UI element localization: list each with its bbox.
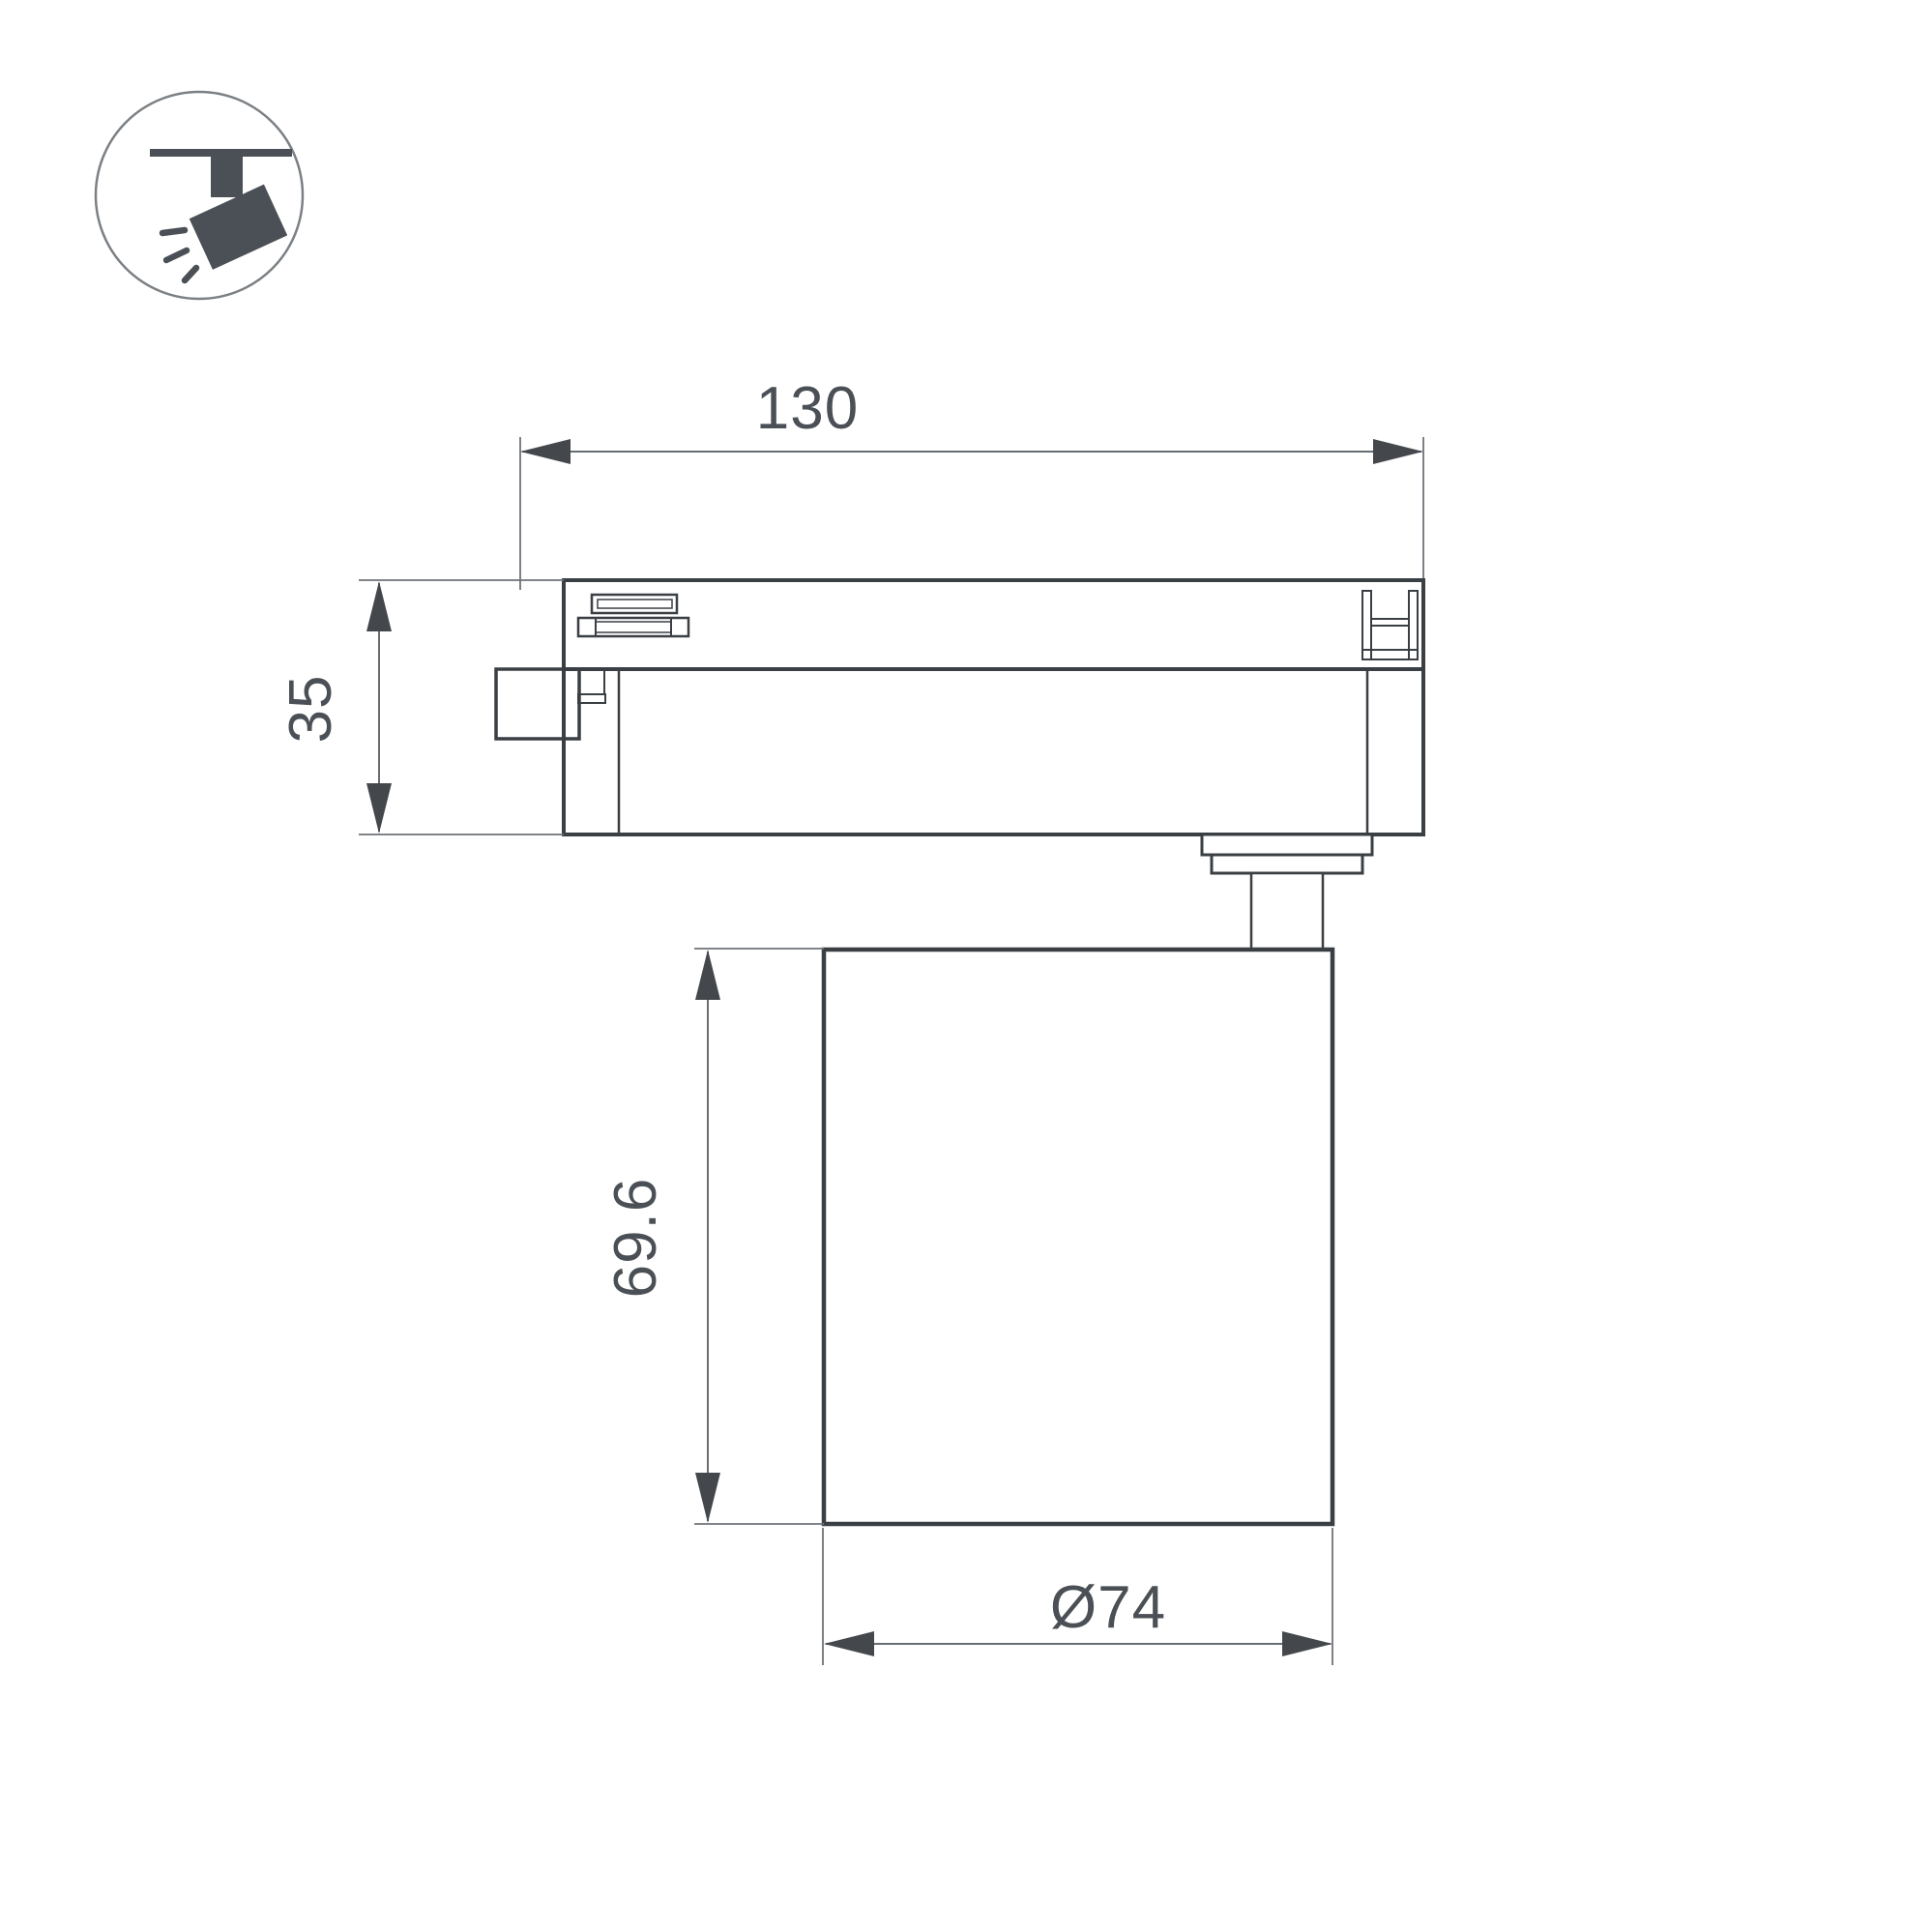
arrow-down-icon xyxy=(366,783,392,834)
arrow-up-icon xyxy=(366,581,392,631)
dim-adapter-height-label: 35 xyxy=(278,675,344,744)
hinge-plate-lower xyxy=(1212,855,1362,873)
dim-adapter-height: 35 xyxy=(278,580,564,834)
drawing-canvas: 130 35 69.6 Ø74 xyxy=(0,0,1932,1932)
technical-drawing-svg: 130 35 69.6 Ø74 xyxy=(0,0,1932,1932)
spotlight-head-icon xyxy=(190,185,287,270)
dim-lamp-height: 69.6 xyxy=(602,949,824,1524)
track-adapter-lower-band xyxy=(564,669,1423,834)
icon-stem xyxy=(211,155,243,197)
arrow-right-icon xyxy=(1282,1631,1332,1656)
swivel-stem xyxy=(1251,873,1323,950)
fixture-side-view xyxy=(496,580,1423,1524)
light-rays-icon xyxy=(162,230,196,280)
dim-lamp-diameter: Ø74 xyxy=(823,1528,1332,1665)
arrow-down-icon xyxy=(695,1473,720,1523)
dim-adapter-length: 130 xyxy=(520,375,1423,590)
arrow-up-icon xyxy=(695,950,720,1000)
dim-adapter-length-label: 130 xyxy=(756,375,859,442)
arrow-right-icon xyxy=(1373,439,1423,464)
dim-lamp-diameter-label: Ø74 xyxy=(1050,1574,1166,1641)
dim-lamp-height-label: 69.6 xyxy=(602,1178,669,1299)
track-adapter-upper-band xyxy=(564,580,1423,669)
lamp-head-body xyxy=(824,950,1332,1524)
arrow-left-icon xyxy=(824,1631,874,1656)
hinge-plate-upper xyxy=(1202,834,1372,855)
arrow-left-icon xyxy=(520,439,571,464)
track-spotlight-icon xyxy=(96,92,303,299)
